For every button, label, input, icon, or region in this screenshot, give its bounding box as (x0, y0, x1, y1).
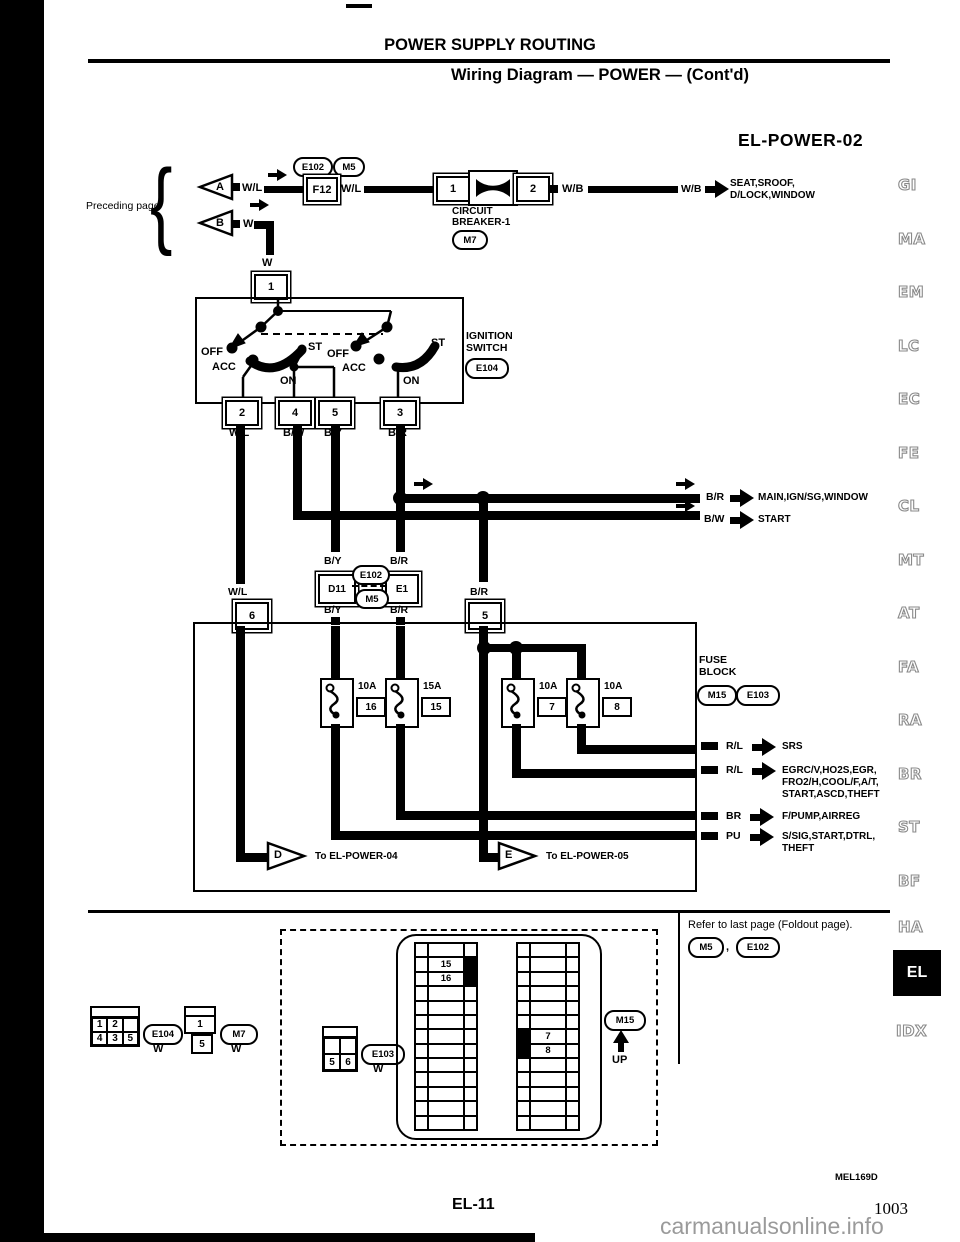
ign-left-acc: ACC (212, 361, 236, 373)
wire-f16-out (331, 724, 340, 840)
connector-lock-tab (92, 1008, 138, 1018)
fusebox-cell: 7 (530, 1029, 566, 1043)
dest-arrow-icon (750, 808, 774, 826)
fusebox-cell (428, 1101, 464, 1115)
fusebox-cell (464, 1101, 477, 1115)
wire-color-wl-2: W/L (341, 183, 361, 195)
fusebox-cell (530, 1116, 566, 1130)
fusebox-cell (566, 957, 579, 971)
connector-ref-e103: E103 (736, 685, 780, 706)
fusebox-cell (464, 957, 477, 971)
note-divider (678, 912, 680, 1064)
dest-start: START (758, 514, 791, 525)
fusebox-grid-left: 1516 (414, 942, 478, 1131)
fusebox-cell (517, 1029, 530, 1043)
fusebox-cell (517, 1015, 530, 1029)
note-ref-e102: E102 (736, 937, 780, 958)
wire-bw-h (293, 511, 700, 520)
diagram-id: EL-POWER-02 (738, 130, 863, 151)
ignition-terminal-4: 4 (278, 400, 312, 426)
section-divider (88, 910, 890, 913)
fuse-7 (501, 678, 535, 728)
scan-edge-left (0, 0, 44, 1242)
connector-d11: D11 (318, 574, 356, 604)
wire-f8-link (516, 644, 586, 652)
margin-tab-st: ST (898, 818, 920, 836)
margin-tab-lc: LC (898, 337, 920, 355)
fusebox-cell (530, 1001, 566, 1015)
flow-arrow-icon (268, 169, 287, 181)
page-connector-a-triangle (196, 173, 234, 201)
watermark: carmanualsonline.info (660, 1213, 884, 1240)
fuse-15 (385, 678, 419, 728)
wire-by-v (331, 424, 340, 552)
wire-color-wl: W/L (242, 182, 262, 194)
margin-tab-ra: RA (898, 711, 922, 729)
pin-cell: 5 (324, 1054, 340, 1070)
fusebox-cell (566, 972, 579, 986)
fusebox-cell (517, 957, 530, 971)
wire-wl-fb (236, 626, 245, 862)
margin-tab-fe: FE (898, 444, 920, 462)
connector-e104-color: W (153, 1043, 163, 1055)
pin-cell: 6 (340, 1054, 356, 1070)
output-br-dest: F/PUMP,AIRREG (782, 811, 860, 822)
fusebox-cell (464, 1001, 477, 1015)
ign-left-off: OFF (201, 346, 223, 358)
fusebox-up-label: UP (612, 1054, 627, 1066)
up-arrow-stem (618, 1042, 624, 1052)
wire-pu-h (331, 831, 695, 840)
fuse-15-amp: 15A (423, 681, 441, 692)
fusebox-cell: 16 (428, 972, 464, 986)
connector-e103-color: W (373, 1063, 383, 1075)
fusebox-cell (566, 1116, 579, 1130)
bowtie-icon (473, 175, 513, 201)
fusebox-cell (566, 1101, 579, 1115)
fusebox-cell (464, 1058, 477, 1072)
fusebox-cell: 15 (428, 957, 464, 971)
ignition-label-line2: SWITCH (466, 343, 507, 355)
wire-wl-fb-h (236, 853, 268, 862)
fuse-7-amp: 10A (539, 681, 557, 692)
junction-dot (393, 491, 407, 505)
fusebox-cell (464, 1087, 477, 1101)
fusebox-cell (415, 972, 428, 986)
ignition-label-line1: IGNITION (466, 331, 513, 343)
connector-view-e103: 5 6 (322, 1026, 358, 1072)
fusebox-cell (566, 1058, 579, 1072)
fuse-icon (503, 680, 528, 721)
wire-by-fb (331, 626, 340, 678)
wire-color-br-below: B/R (390, 605, 408, 617)
pin-cell: 4 (92, 1032, 107, 1046)
fuse-8 (566, 678, 600, 728)
connector-e1: E1 (385, 574, 419, 604)
fusebox-cell (566, 1072, 579, 1086)
scanned-page: POWER SUPPLY ROUTING Wiring Diagram — PO… (0, 0, 960, 1242)
connector-view-m7-ref: M7 (220, 1024, 258, 1045)
fuse-8-num: 8 (602, 697, 632, 717)
wire-f7-in (512, 648, 521, 678)
wire-stub (232, 183, 240, 191)
wire-wl-v (236, 424, 245, 584)
margin-tab-cl: CL (898, 497, 920, 515)
wire-wb (588, 186, 678, 193)
pin-cell (340, 1038, 356, 1054)
flow-arrow-icon (250, 199, 269, 211)
circuit-breaker-symbol (468, 170, 518, 206)
pin-cell (324, 1038, 340, 1054)
margin-tab-mt: MT (898, 551, 924, 569)
wire-rl2-h (512, 769, 695, 778)
fuse-7-num: 7 (537, 697, 567, 717)
fusebox-cell (428, 1116, 464, 1130)
wire-f8-in (577, 644, 586, 678)
fusebox-cell (566, 1015, 579, 1029)
fusebox-cell (415, 1101, 428, 1115)
fusebox-cell (464, 986, 477, 1000)
output-rl1-dest: SRS (782, 741, 803, 752)
fusebox-cell (566, 1087, 579, 1101)
fuse-icon (568, 680, 593, 721)
output-pu-dest-1: S/SIG,START,DTRL, (782, 831, 875, 842)
fusebox-cell (566, 943, 579, 957)
wire-color-wb: W/B (562, 183, 583, 195)
ign-right-off: OFF (327, 348, 349, 360)
dest-el-power-04: To EL-POWER-04 (315, 851, 398, 862)
scan-edge-bottom (0, 1233, 535, 1242)
fusebox-cell (530, 1072, 566, 1086)
margin-tab-el: EL (907, 964, 927, 982)
ignition-terminal-5: 5 (318, 400, 352, 426)
fuse-icon (322, 680, 347, 721)
fusebox-cell (517, 1101, 530, 1115)
dest-arrow-icon (752, 762, 776, 780)
cb-terminal-1: 1 (436, 176, 470, 202)
wire-wl-2 (364, 186, 438, 193)
ignition-terminal-2: 2 (225, 400, 259, 426)
fusebox-cell (517, 1072, 530, 1086)
fusebox-cell (428, 1058, 464, 1072)
wire-color-br-t5: B/R (470, 587, 488, 599)
connector-m7-color: W (231, 1043, 241, 1055)
note-ref-m5: M5 (688, 937, 724, 958)
connector-ref-m15: M15 (697, 685, 737, 706)
margin-tab-el-box: EL (893, 950, 941, 996)
cb-terminal-2: 2 (516, 176, 550, 202)
fuse-block-label-2: BLOCK (699, 667, 736, 679)
page-connector-b-triangle (196, 209, 234, 237)
dest-arrow-icon (752, 738, 776, 756)
output-rl2-dest-1: EGRC/V,HO2S,EGR, (782, 765, 877, 776)
fusebox-cell (415, 1087, 428, 1101)
connector-ref-e102: E102 (293, 157, 333, 177)
margin-tab-at: AT (898, 604, 920, 622)
margin-tab-ha: HA (898, 918, 923, 936)
cb-name-line2: BREAKER-1 (452, 217, 510, 228)
fusebox-cell (530, 1015, 566, 1029)
connector-lock-tab (186, 1008, 214, 1017)
ign-left-st: ST (308, 341, 322, 353)
fusebox-cell (517, 1058, 530, 1072)
margin-tab-bf: BF (898, 872, 921, 890)
connector-f12: F12 (306, 177, 338, 202)
brace: { (150, 160, 172, 248)
fusebox-cell (530, 1087, 566, 1101)
fusebox-cell: 8 (530, 1044, 566, 1058)
wire-stub (232, 220, 240, 228)
fusebox-cell (464, 1072, 477, 1086)
fusebox-cell (530, 957, 566, 971)
fusebox-cell (415, 1015, 428, 1029)
fusebox-cell (428, 1072, 464, 1086)
pin-cell: 5 (123, 1032, 138, 1046)
wire-color-by-below: B/Y (324, 605, 342, 617)
dest-seat-sroof: SEAT,SROOF, (730, 178, 795, 189)
fusebox-cell (428, 943, 464, 957)
pin-cell: 2 (107, 1018, 122, 1032)
wire-br-v (396, 424, 405, 552)
fusebox-cell (428, 1029, 464, 1043)
fusebox-cell (428, 1087, 464, 1101)
wire-color-w: W (243, 218, 253, 230)
wire-br-h (396, 494, 700, 503)
page-connector-b-letter: B (216, 217, 224, 229)
wire-t5-fb-h (479, 853, 499, 862)
ignition-terminal-3: 3 (383, 400, 417, 426)
margin-tab-ec: EC (898, 390, 920, 408)
fuse-icon (387, 680, 412, 721)
wire-color-wb-2: W/B (681, 184, 701, 196)
fusebox-cell (415, 1116, 428, 1130)
figure-code: MEL169D (835, 1172, 878, 1183)
wire-w-v (266, 221, 274, 255)
ign-right-acc: ACC (342, 362, 366, 374)
margin-tab-idx: IDX (896, 1022, 927, 1040)
fusebox-cell (464, 1015, 477, 1029)
pin-cell: 1 (186, 1017, 214, 1032)
connector-ref-e102-2: E102 (352, 565, 390, 585)
flow-arrow-icon (676, 478, 695, 490)
top-dash-mark (346, 4, 372, 8)
fusebox-cell (428, 986, 464, 1000)
output-rl2-wire: R/L (726, 765, 743, 777)
connector-ref-m5: M5 (333, 157, 365, 177)
connector-ref-e104: E104 (465, 358, 509, 379)
fusebox-cell (517, 1116, 530, 1130)
margin-tab-br: BR (898, 765, 922, 783)
fusebox-cell (530, 943, 566, 957)
fusebox-cell (517, 1001, 530, 1015)
wire-br-out-h (396, 811, 695, 820)
pin-cell: 1 (92, 1018, 107, 1032)
fusebox-cell (464, 943, 477, 957)
margin-tab-em: EM (898, 283, 924, 301)
connector-lock-tab (324, 1028, 356, 1038)
page-title: POWER SUPPLY ROUTING (60, 36, 920, 55)
fusebox-cell (415, 1001, 428, 1015)
note-comma: , (726, 941, 729, 953)
ign-right-st: ST (431, 337, 445, 349)
fuse-16 (320, 678, 354, 728)
wire-f15-out (396, 724, 405, 820)
flow-arrow-icon (414, 478, 433, 490)
fusebox-cell (530, 1101, 566, 1115)
fusebox-cell (566, 1001, 579, 1015)
fuse-16-num: 16 (356, 697, 386, 717)
connector-view-m7: 1 (184, 1006, 216, 1034)
preceding-page-label: Preceding page (86, 201, 160, 213)
ign-right-on: ON (403, 375, 420, 387)
wire-color-wl-mid: W/L (228, 587, 247, 599)
fusebox-cell (517, 1044, 530, 1058)
wire-t5-fb (479, 626, 488, 862)
wire-stub-br (701, 812, 718, 820)
wire-rl1-h (577, 745, 695, 754)
page-subtitle: Wiring Diagram — POWER — (Cont'd) (200, 66, 960, 85)
header-rule (88, 59, 890, 63)
fusebox-cell (517, 986, 530, 1000)
dest-dlock-window: D/LOCK,WINDOW (730, 190, 815, 201)
fusebox-cell (428, 1015, 464, 1029)
fusebox-cell (415, 986, 428, 1000)
fusebox-cell (566, 986, 579, 1000)
fusebox-cell (464, 1044, 477, 1058)
fusebox-cell (464, 972, 477, 986)
fusebox-cell (530, 1058, 566, 1072)
dest-main-ign: MAIN,IGN/SG,WINDOW (758, 492, 868, 503)
dest-el-power-05: To EL-POWER-05 (546, 851, 629, 862)
wire-bw-v (293, 424, 302, 520)
connector-view-m15-ref: M15 (604, 1010, 646, 1031)
fusebox-cell (464, 1116, 477, 1130)
output-pu-dest-2: THEFT (782, 843, 814, 854)
wire-br-t5-v (479, 498, 488, 582)
dest-arrow-icon (705, 180, 729, 198)
wire-stub-rl1 (701, 742, 718, 750)
fuse-block-label-1: FUSE (699, 655, 727, 667)
wire-wl-1 (264, 186, 308, 193)
wire-color-bw-start: B/W (704, 514, 724, 526)
output-pu-wire: PU (726, 831, 741, 843)
fusebox-cell (530, 972, 566, 986)
wire-stub (550, 185, 558, 193)
margin-tab-gi: GI (898, 176, 917, 194)
output-rl2-dest-2: FRO2/H,COOL/F,A/T, (782, 777, 879, 788)
page-connector-a-letter: A (216, 181, 224, 193)
fusebox-cell (415, 1072, 428, 1086)
page-connector-d-letter: D (274, 849, 282, 861)
flow-arrow-icon (676, 500, 695, 512)
fusebox-cell (415, 943, 428, 957)
fusebox-cell (517, 972, 530, 986)
output-br-wire: BR (726, 811, 741, 823)
fusebox-cell (517, 943, 530, 957)
page-connector-e-triangle (497, 841, 539, 871)
pin-cell (123, 1018, 138, 1032)
fusebox-cell (530, 986, 566, 1000)
fusebox-cell (415, 957, 428, 971)
foldout-note: Refer to last page (Foldout page). (688, 919, 852, 931)
fusebox-grid-right: 78 (516, 942, 580, 1131)
output-rl1-wire: R/L (726, 741, 743, 753)
output-rl2-dest-3: START,ASCD,THEFT (782, 789, 880, 800)
page-connector-d-triangle (266, 841, 308, 871)
connector-view-e104: 1 2 4 3 5 (90, 1006, 140, 1047)
wire-color-by-above: B/Y (324, 556, 342, 568)
wire-br-fb (396, 626, 405, 678)
connector-view-m7-pin5: 5 (191, 1034, 213, 1054)
margin-tab-ma: MA (898, 230, 926, 248)
wire-color-br-above: B/R (390, 556, 408, 568)
fuse-15-num: 15 (421, 697, 451, 717)
page-connector-e-letter: E (505, 849, 512, 861)
fusebox-cell (464, 1029, 477, 1043)
ign-left-on: ON (280, 375, 297, 387)
wire-stub-pu (701, 832, 718, 840)
margin-tab-fa: FA (898, 658, 919, 676)
page-number: EL-11 (452, 1196, 495, 1214)
fusebox-cell (415, 1044, 428, 1058)
wire-color-br-main: B/R (706, 492, 724, 504)
cb-name-line1: CIRCUIT (452, 206, 493, 217)
dashed-link (352, 585, 386, 587)
dest-arrow-icon (730, 489, 754, 507)
pin-cell: 3 (107, 1032, 122, 1046)
fusebox-cell (428, 1001, 464, 1015)
fusebox-cell (566, 1029, 579, 1043)
fusebox-cell (428, 1044, 464, 1058)
fuse-8-amp: 10A (604, 681, 622, 692)
connector-view-e104-ref: E104 (143, 1024, 183, 1045)
fusebox-cell (415, 1058, 428, 1072)
connector-ref-m7: M7 (452, 230, 488, 250)
wire-color-w-drop: W (262, 257, 272, 269)
fusebox-cell (415, 1029, 428, 1043)
fuse-16-amp: 10A (358, 681, 376, 692)
fusebox-cell (566, 1044, 579, 1058)
wire-stub-rl2 (701, 766, 718, 774)
fusebox-cell (517, 1087, 530, 1101)
connector-ref-m5-2: M5 (355, 589, 389, 609)
dest-arrow-icon (730, 511, 754, 529)
dest-arrow-icon (750, 828, 774, 846)
